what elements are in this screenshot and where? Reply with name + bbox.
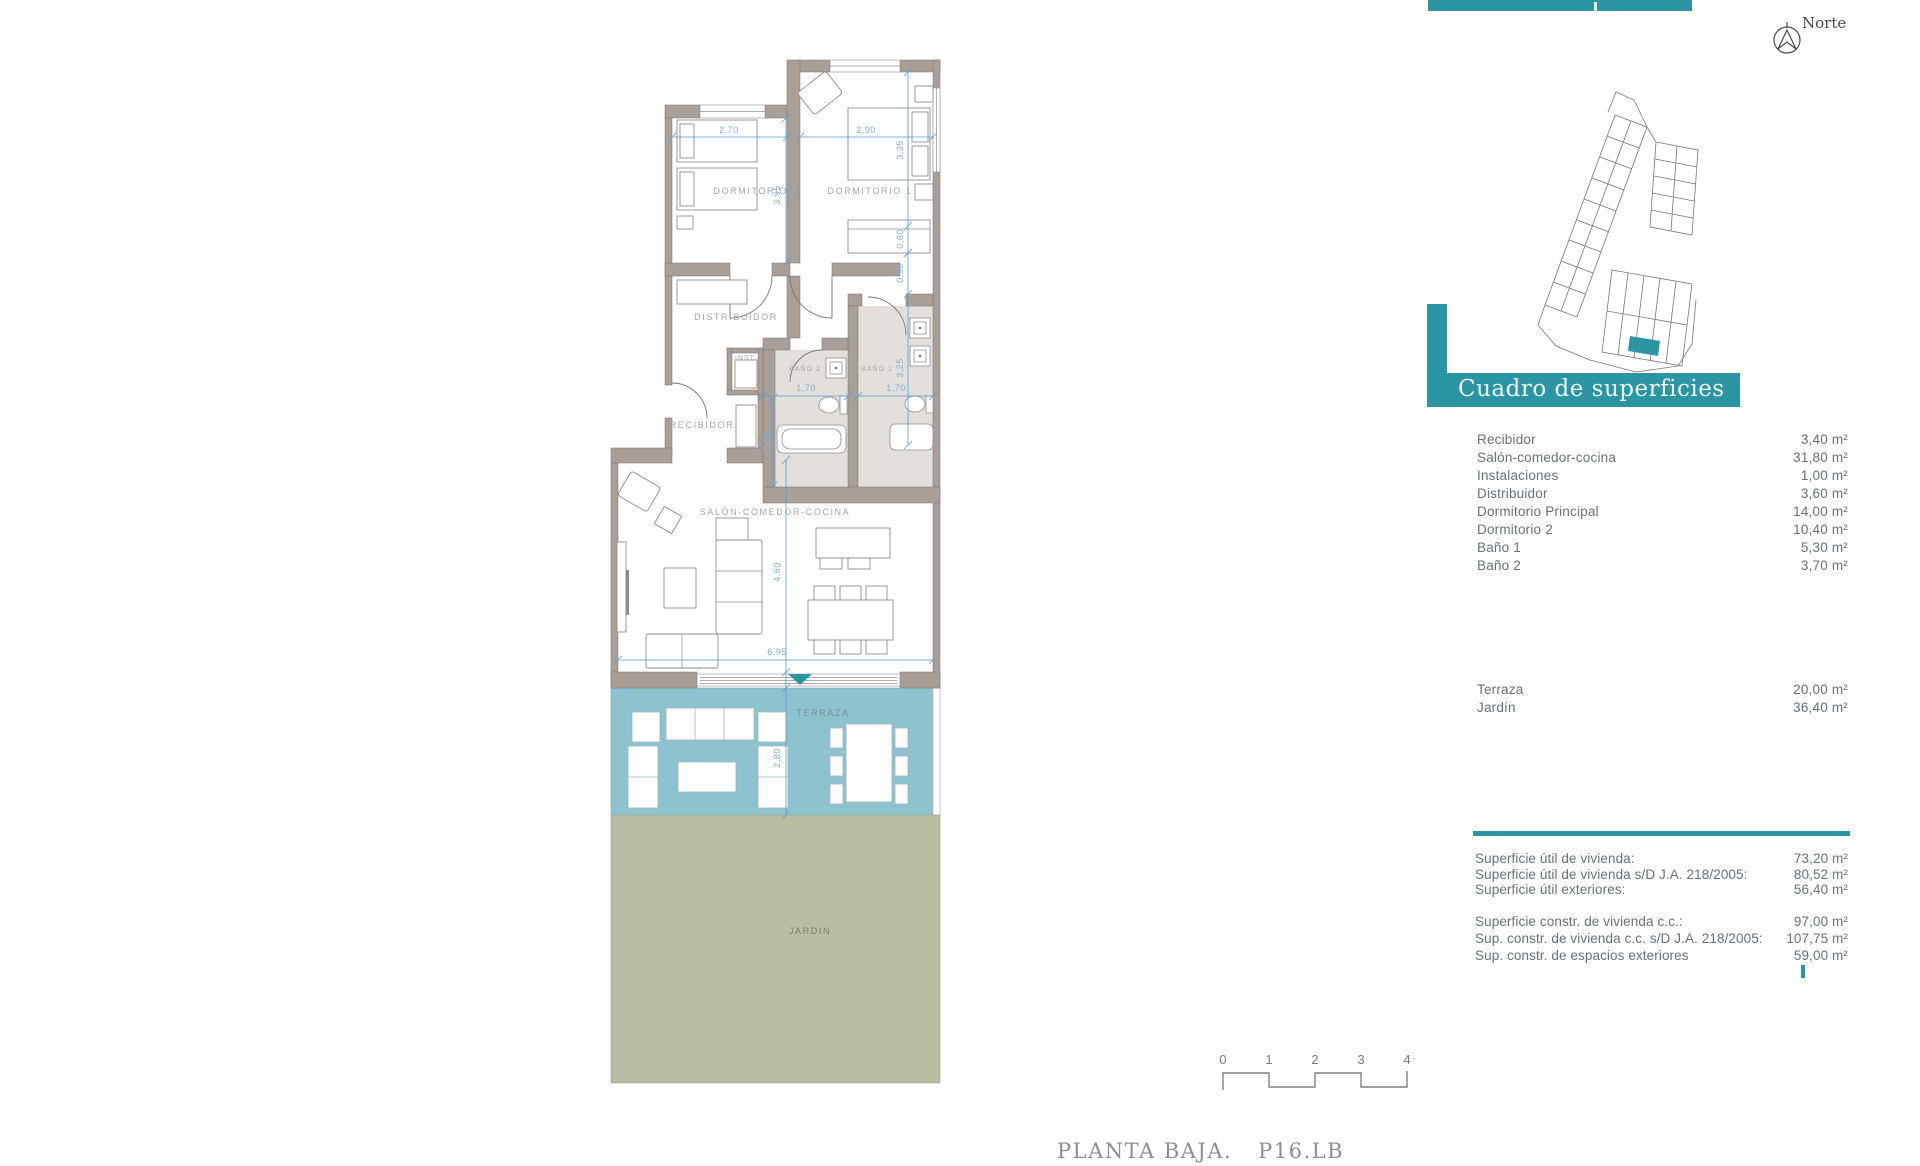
summary-row: Superficie útil de vivienda s/D J.A. 218… [1475,867,1848,883]
row-value: 20,00 m² [1793,681,1848,699]
plan-title: PLANTA BAJA. [1057,1139,1232,1163]
row-value: 31,80 m² [1793,449,1848,467]
accent-bar [1427,304,1447,374]
row-value: 3,70 m² [1801,557,1848,575]
table-row: Distribuidor3,60 m² [1477,485,1848,503]
summary-divider [1473,831,1850,836]
scale-tick-0: 0 [1219,1052,1226,1067]
row-value: 5,30 m² [1801,539,1848,557]
dim-salon-width: 6,95 [767,647,787,657]
row-value: 59,00 m² [1794,947,1848,964]
summary-row: Superficie constr. de vivienda c.c.:97,0… [1475,913,1848,930]
row-value: 80,52 m² [1794,867,1848,883]
label-terraza: TERRAZA [796,708,849,718]
row-label: Sup. constr. de vivienda c.c. s/D J.A. 2… [1475,930,1763,947]
apartment-plan: 2,70 2,90 3,95 3,35 0,60 0,90 3,25 1,70 … [611,60,940,1083]
row-value: 1,00 m² [1801,467,1848,485]
label-recibidor: RECIBIDOR [670,420,734,430]
table-row: Instalaciones1,00 m² [1477,467,1848,485]
banner-text-fragment [1594,2,1597,11]
row-label: Baño 2 [1477,557,1521,575]
label-bano1: BAÑO 1 [861,364,893,373]
table-row: Dormitorio 210,40 m² [1477,521,1848,539]
scale-tick-4: 4 [1403,1052,1410,1067]
surface-table: Recibidor3,40 m² Salón-comedor-cocina31,… [1477,431,1848,575]
row-label: Dormitorio 2 [1477,521,1553,539]
dim-bano2-width: 1,70 [796,383,816,393]
table-row: Recibidor3,40 m² [1477,431,1848,449]
row-label: Superficie útil de vivienda: [1475,851,1635,867]
row-label: Dormitorio Principal [1477,503,1599,521]
dim-wardrobe-depth: 0,60 [895,229,905,249]
summary-row: Sup. constr. de vivienda c.c. s/D J.A. 2… [1475,930,1848,947]
dim-passage-width: 0,90 [895,263,905,283]
row-value: 73,20 m² [1794,851,1848,867]
row-label: Terraza [1477,681,1523,699]
table-row: Baño 15,30 m² [1477,539,1848,557]
label-distribuidor: DISTRIBUIDOR [694,312,778,322]
row-label: Recibidor [1477,431,1536,449]
project-banner [1428,0,1692,11]
row-label: Instalaciones [1477,467,1558,485]
terraza-side-wall [933,688,940,815]
table-row: Terraza20,00 m² [1477,681,1848,699]
floor-plan-drawing: 2,70 2,90 3,95 3,35 0,60 0,90 3,25 1,70 … [0,0,1920,1166]
surface-table-title: Cuadro de superficies [1458,376,1725,402]
surface-table-header: Cuadro de superficies [1427,373,1740,407]
dim-bano1-depth: 3,25 [895,358,905,378]
row-value: 56,40 m² [1794,882,1848,898]
dim-bano1-width: 1,70 [886,383,906,393]
north-label: Norte [1802,14,1846,32]
dim-dorm2-width: 2,70 [719,125,739,135]
row-label: Jardín [1477,699,1516,717]
summary-utiles: Superficie útil de vivienda:73,20 m² Sup… [1475,851,1848,898]
jardin-area [611,815,940,1083]
label-dormitorio1: DORMITORIO 1 [827,186,912,196]
summary-row: Sup. constr. de espacios exteriores59,00… [1475,947,1848,964]
scale-tick-2: 2 [1311,1052,1318,1067]
dim-dorm1-width: 2,90 [856,125,876,135]
row-value: 10,40 m² [1793,521,1848,539]
summary-construidas: Superficie constr. de vivienda c.c.:97,0… [1475,913,1848,964]
row-label: Salón-comedor-cocina [1477,449,1616,467]
north-compass: Norte [1774,14,1846,53]
row-label: Baño 1 [1477,539,1521,557]
scale-tick-1: 1 [1265,1052,1272,1067]
row-value: 3,40 m² [1801,431,1848,449]
row-label: Superficie útil de vivienda s/D J.A. 218… [1475,867,1748,883]
row-label: Superficie constr. de vivienda c.c.: [1475,913,1683,930]
label-bano2: BAÑO 2 [789,364,821,373]
label-inst: INST. [735,355,757,362]
row-label: Superficie útil exteriores: [1475,882,1626,898]
scale-tick-3: 3 [1357,1052,1364,1067]
highlighted-unit [1628,336,1660,356]
row-label: Distribuidor [1477,485,1548,503]
plan-code: P16.LB [1258,1139,1344,1163]
label-jardin: JARDIN [789,926,831,936]
dim-salon-depth: 4,60 [772,562,782,582]
row-label: Sup. constr. de espacios exteriores [1475,947,1689,964]
accent-tick [1801,965,1805,978]
summary-row: Superficie útil exteriores:56,40 m² [1475,882,1848,898]
row-value: 36,40 m² [1793,699,1848,717]
exterior-surface-table: Terraza20,00 m² Jardín36,40 m² [1477,681,1848,717]
label-dormitorio2: DORMITORIO 2 [713,186,798,196]
row-value: 107,75 m² [1786,930,1848,947]
dim-dorm1-depth: 3,35 [895,140,905,160]
table-row: Jardín36,40 m² [1477,699,1848,717]
summary-row: Superficie útil de vivienda:73,20 m² [1475,851,1848,867]
dim-bano2-depth: 2,20 [761,431,771,451]
row-value: 14,00 m² [1793,503,1848,521]
table-row: Salón-comedor-cocina31,80 m² [1477,449,1848,467]
site-plan-minimap [1538,92,1698,372]
north-arrow-icon [1778,30,1796,49]
table-row: Dormitorio Principal14,00 m² [1477,503,1848,521]
table-row: Baño 23,70 m² [1477,557,1848,575]
row-value: 3,60 m² [1801,485,1848,503]
scale-bar: 0 1 2 3 4 [1219,1052,1410,1090]
row-value: 97,00 m² [1794,913,1848,930]
dim-terraza-depth: 2,80 [772,748,782,768]
sheet-title: PLANTA BAJA.P16.LB [1057,1139,1344,1163]
label-salon: SALÓN-COMEDOR-COCINA [700,507,851,517]
